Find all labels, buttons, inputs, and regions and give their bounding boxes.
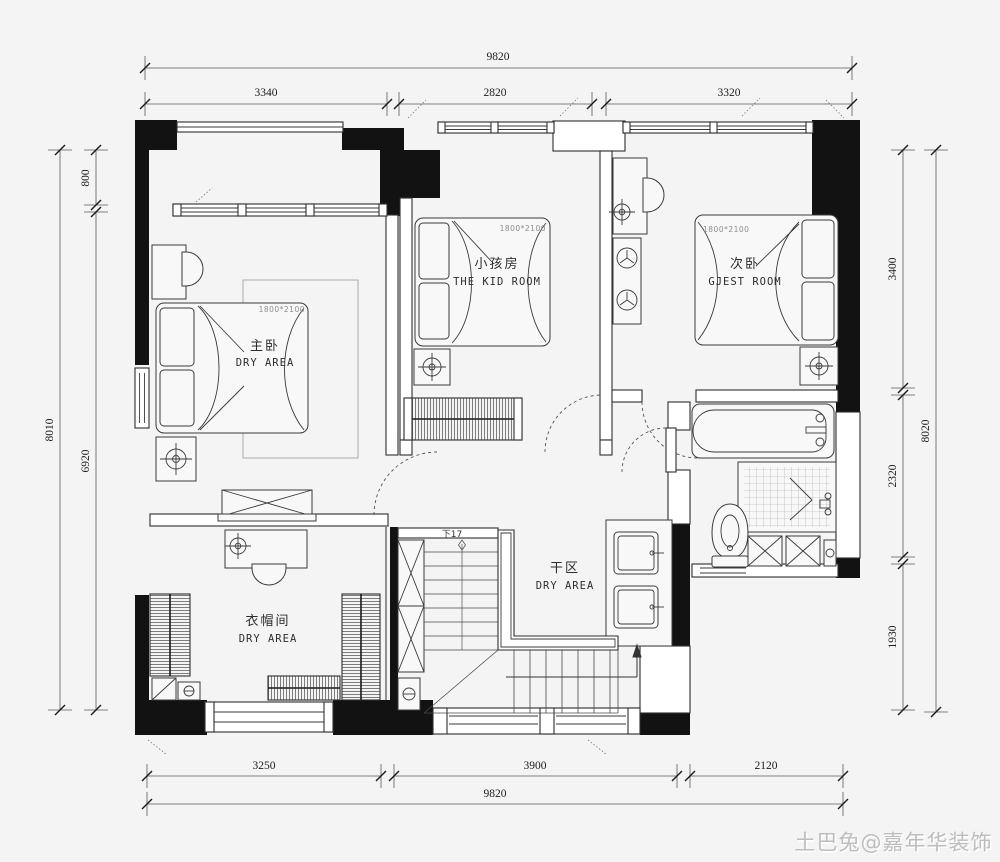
stairs-down-label: 下17 [442, 530, 462, 540]
desk-icon [225, 530, 307, 568]
dimension-top: 9820 3340 2820 3320 [140, 51, 857, 116]
guest-room: 1800*2100 次卧 GJEST ROOM [609, 158, 838, 385]
cloakroom-label-en: DRY AREA [239, 633, 298, 645]
dim-right-seg-2: 2320 [887, 464, 899, 487]
cloakroom-label-zh: 衣帽间 [245, 613, 290, 629]
master-door-arc [374, 452, 437, 515]
watermark: 土巴兔@嘉年华装饰 [795, 831, 993, 855]
floor-plan-canvas: 9820 3340 2820 3320 3250 3900 2120 9820 [0, 0, 1000, 862]
wardrobe-icon [342, 594, 380, 700]
cloakroom: 衣帽间 DRY AREA [150, 530, 380, 700]
dim-top-seg-1: 3340 [255, 87, 278, 99]
dimension-bottom: 3250 3900 2120 9820 [142, 760, 848, 816]
kid-room: 1800*2100 小孩房 THE KID ROOM [404, 218, 550, 440]
dim-left-seg-2: 6920 [80, 449, 92, 472]
dim-right-seg-3: 1930 [887, 625, 899, 648]
chair-icon [252, 564, 286, 585]
dim-top-seg-3: 3320 [718, 87, 741, 99]
chair-icon [643, 178, 664, 212]
dim-top-seg-2: 2820 [484, 87, 507, 99]
kid-door-arc [545, 395, 602, 452]
cabinet-icon [218, 490, 316, 521]
master-room-label-en: DRY AREA [236, 357, 295, 369]
desk-icon [152, 245, 186, 299]
shaft-icon [398, 540, 424, 710]
dim-bottom-seg-3: 2120 [755, 760, 778, 772]
desk-icon [613, 158, 647, 234]
dim-bottom-total: 9820 [484, 788, 507, 800]
dry-area: 干区 DRY AREA [536, 520, 672, 646]
dim-left-seg-1: 800 [80, 169, 92, 187]
cabinet-icon [152, 678, 200, 700]
wardrobe-icon [150, 594, 190, 676]
dim-right-total: 8020 [920, 419, 932, 442]
bathroom-door-leaf [666, 428, 676, 472]
dim-bottom-seg-1: 3250 [253, 760, 276, 772]
bathtub-icon [692, 404, 834, 458]
master-bedroom: 1800*2100 主卧 DRY AREA [152, 245, 358, 521]
dim-top-total: 9820 [487, 51, 510, 63]
wardrobe-icon [404, 398, 522, 440]
kid-room-label-en: THE KID ROOM [453, 276, 541, 288]
dim-right-seg-1: 3400 [887, 257, 899, 280]
guest-room-label-en: GJEST ROOM [708, 276, 781, 288]
dimension-left: 8010 800 6920 [44, 145, 108, 715]
nightstand-icon [800, 347, 838, 385]
vanity-sink-icon [606, 520, 672, 646]
staircase: 下17 [398, 528, 641, 713]
guest-bed-size: 1800*2100 [703, 225, 749, 234]
master-room-label-zh: 主卧 [250, 339, 280, 354]
floor-plan-drawing: 9820 3340 2820 3320 3250 3900 2120 9820 [0, 0, 1000, 862]
stair-treads [424, 552, 618, 713]
speaker-shelf-icon [613, 238, 641, 324]
master-bed-size: 1800*2100 [259, 305, 305, 314]
shower-icon [738, 462, 836, 532]
dim-bottom-seg-2: 3900 [524, 760, 547, 772]
bathroom-door-arc [622, 428, 666, 472]
bathroom [692, 404, 836, 567]
dimension-right: 3400 2320 1930 8020 [887, 145, 948, 717]
dry-area-label-zh: 干区 [550, 561, 580, 576]
dim-left-total: 8010 [44, 418, 56, 441]
chair-icon [182, 252, 203, 286]
kid-room-label-zh: 小孩房 [474, 256, 519, 272]
floor-drain-icon [748, 536, 836, 566]
toilet-icon [712, 504, 748, 567]
guest-room-label-zh: 次卧 [730, 256, 760, 272]
nightstand-icon [156, 437, 196, 481]
wardrobe-icon [268, 676, 340, 700]
dry-area-label-en: DRY AREA [536, 580, 595, 592]
nightstand-icon [414, 349, 450, 385]
kid-bed-size: 1800*2100 [500, 224, 546, 233]
